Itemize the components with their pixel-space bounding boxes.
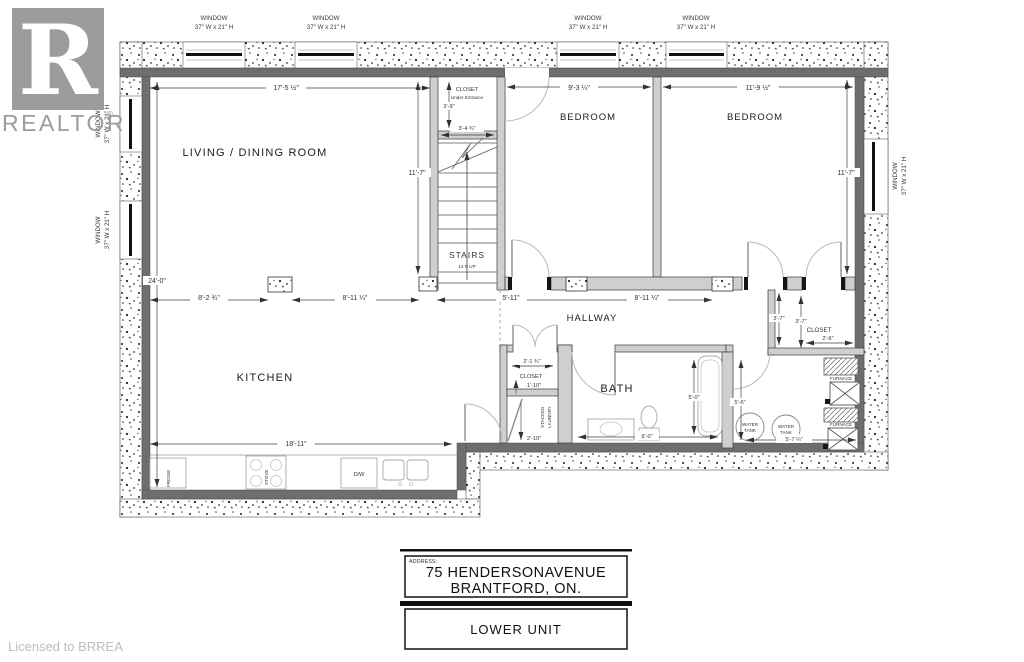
room-label-bath: BATH bbox=[600, 383, 633, 395]
dim-counter: 18'-11" bbox=[285, 441, 307, 448]
floor-plan-page: STAIRS 13 R UP bbox=[0, 0, 1024, 662]
furnace-2-label: FURNACE bbox=[830, 422, 852, 427]
bedroom1-door bbox=[512, 240, 549, 277]
room-label-living: LIVING / DINING ROOM bbox=[182, 147, 327, 159]
room-label-hallway: HALLWAY bbox=[567, 313, 618, 324]
water-tank-1: WATER TANK bbox=[736, 413, 764, 441]
dim-bedroom2-height: 11'-7" bbox=[837, 170, 855, 177]
window-label-top-2-line2: 37" W x 21" H bbox=[307, 24, 345, 31]
window-top-2 bbox=[295, 42, 357, 68]
dim-bedroom2-width: 11'-9 ½" bbox=[745, 84, 771, 92]
window-label-top-3-line1: WINDOW bbox=[574, 15, 601, 22]
dim-bed-closet-width: 2'-6" bbox=[822, 336, 833, 342]
hall-closet-bifold-doors bbox=[513, 325, 557, 347]
dim-hall-closet-width: 2'-1 ¾" bbox=[523, 359, 540, 365]
kitchen-sink bbox=[383, 460, 428, 486]
dim-entry-closet-height: 3'-9" bbox=[443, 104, 454, 110]
dim-bath-width: 9'-0" bbox=[641, 434, 652, 440]
furnace-1: FURNACE bbox=[824, 358, 860, 405]
dim-bedroom1-width: 9'-3 ¼" bbox=[568, 85, 590, 92]
unit-label: LOWER UNIT bbox=[470, 622, 562, 637]
hall-closet-label: CLOSET bbox=[520, 374, 543, 380]
window-label-top-4-line1: WINDOW bbox=[682, 15, 709, 22]
stairs: STAIRS 13 R UP bbox=[438, 138, 497, 283]
dim-bath-height: 5'-0" bbox=[688, 395, 699, 401]
dim-hall-seg1: 5'-11" bbox=[502, 295, 520, 302]
address-line1: 75 HENDERSONAVENUE bbox=[426, 565, 606, 581]
dim-living-width: 17'-5 ½" bbox=[273, 84, 299, 92]
entry-closet-label-line2: Under Entrance bbox=[451, 95, 484, 100]
entrance-door bbox=[505, 68, 549, 121]
side-entry-door bbox=[465, 404, 502, 441]
dim-entry-closet-width: 3'-4 ¾" bbox=[458, 126, 475, 132]
water-tank-1-label2: TANK bbox=[744, 428, 757, 433]
dim-hall-closet-depth: 1'-10" bbox=[527, 383, 541, 389]
laundry-door bbox=[508, 399, 522, 441]
window-top-1 bbox=[183, 42, 245, 68]
laundry-label-line2: LAUNDRY bbox=[547, 406, 552, 428]
furnace-2: FURNACE bbox=[823, 408, 858, 450]
window-label-left-2-line1: WINDOW bbox=[95, 216, 102, 243]
room-label-kitchen: KITCHEN bbox=[237, 372, 294, 384]
dim-bed-closet-h2: 3'-7" bbox=[795, 319, 806, 325]
dim-bed-closet-h1: 3'-7" bbox=[773, 316, 784, 322]
dim-hall-seg2: 8'-11 ¼" bbox=[634, 295, 660, 302]
utility-door bbox=[733, 352, 770, 389]
window-label-left-2-line2: 37" W x 21" H bbox=[104, 211, 111, 249]
furnace-1-label: FURNACE bbox=[830, 376, 852, 381]
water-tank-1-label1: WATER bbox=[742, 422, 759, 427]
kitchen-counter: FRIDGE STOVE D/W bbox=[150, 455, 457, 489]
window-label-top-1-line1: WINDOW bbox=[200, 15, 227, 22]
window-label-top-4-line2: 37" W x 21" H bbox=[677, 24, 715, 31]
floor-plan-drawing: STAIRS 13 R UP bbox=[0, 0, 1024, 662]
dim-laundry-depth: 2'-10" bbox=[527, 436, 541, 442]
realtor-logo: R REALTOR ® bbox=[2, 4, 126, 136]
room-label-bedroom2: BEDROOM bbox=[727, 112, 783, 123]
bedroom2-closet-door bbox=[806, 242, 841, 277]
water-tank-2-label1: WATER bbox=[778, 424, 795, 429]
window-label-top-2-line1: WINDOW bbox=[312, 15, 339, 22]
dim-living-height: 11'-7" bbox=[408, 170, 426, 177]
window-label-top-1-line2: 37" W x 21" H bbox=[195, 24, 233, 31]
address-line2: BRANTFORD, ON. bbox=[450, 581, 581, 597]
stairs-riser-note: 13 R UP bbox=[458, 264, 475, 269]
realtor-logo-letter: R bbox=[18, 4, 99, 117]
title-block: ADDRESS: 75 HENDERSONAVENUE BRANTFORD, O… bbox=[400, 549, 632, 649]
stairs-label: STAIRS bbox=[449, 250, 485, 260]
dim-overall-height: 24'-0" bbox=[148, 278, 166, 285]
dim-utility-height: 5'-6" bbox=[734, 400, 745, 406]
registered-trademark-icon: ® bbox=[106, 110, 114, 121]
window-label-top-3-line2: 37" W x 21" H bbox=[569, 24, 607, 31]
room-label-bedroom1: BEDROOM bbox=[560, 112, 616, 123]
dim-utility-width: 5'-7 ¼" bbox=[785, 437, 802, 443]
window-right-1 bbox=[864, 139, 888, 214]
dishwasher-label: D/W bbox=[354, 472, 366, 478]
fridge-label: FRIDGE bbox=[166, 470, 171, 487]
window-label-right-1-line2: 37" W x 21" H bbox=[901, 157, 908, 195]
bedroom2-door bbox=[748, 242, 783, 277]
window-label-right-1-line1: WINDOW bbox=[892, 162, 899, 189]
bedroom-closet-label: CLOSET bbox=[807, 327, 832, 334]
window-top-3 bbox=[557, 42, 619, 68]
entry-closet-label-line1: CLOSET bbox=[456, 87, 479, 93]
stove-label: STOVE bbox=[264, 470, 269, 486]
laundry-label-line1: STACKED bbox=[540, 406, 545, 428]
window-top-4 bbox=[666, 42, 727, 68]
license-text: Licensed to BRREA bbox=[8, 639, 123, 654]
interior-walls bbox=[430, 77, 864, 448]
window-left-2 bbox=[120, 201, 142, 259]
dim-kitchen-seg2: 8'-11 ¼" bbox=[342, 295, 368, 302]
dim-kitchen-seg1: 8'-2 ¾" bbox=[198, 295, 220, 302]
